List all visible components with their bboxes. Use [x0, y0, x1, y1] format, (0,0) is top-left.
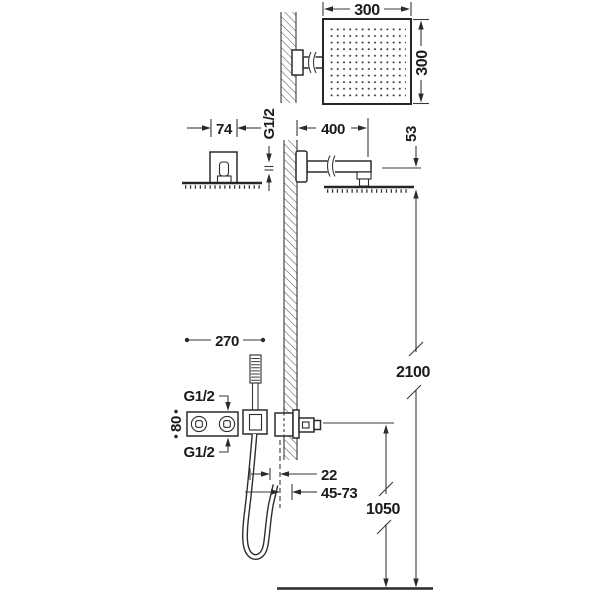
- wall-outlet-side-view: 1050 22 45-73: [245, 407, 400, 588]
- dim-mixer-offset-label: 270: [215, 333, 239, 350]
- rain-shower-head-plan-icon: [323, 19, 411, 104]
- technical-drawing-canvas: 300 300 74: [0, 0, 600, 600]
- dim-head-width-label: 300: [354, 2, 380, 19]
- dim-mixer-bottom-thread: G1/2: [184, 438, 231, 462]
- shower-installation-dimension-drawing: 300 300 74: [0, 0, 600, 600]
- dim-mixer-top-thread: G1/2: [184, 388, 231, 411]
- arm-escutcheon-front-icon: [210, 152, 237, 183]
- dim-escutcheon-width-label: 74: [216, 121, 233, 138]
- dim-arm-thread: G1/2: [261, 108, 278, 191]
- dim-outlet-range: 45-73: [245, 484, 357, 502]
- dim-arm-length-label: 400: [321, 121, 345, 138]
- dim-mixer-height: 80: [168, 410, 185, 439]
- dim-escutcheon-width: 74: [187, 119, 261, 138]
- dim-head-width: 300: [323, 2, 411, 19]
- shower-arm-side-view: 400 53 2100: [296, 118, 430, 588]
- mixer-top-thread-label: G1/2: [184, 388, 215, 405]
- plan-view: 300 300: [281, 2, 431, 104]
- dim-mixer-height-label: 80: [168, 416, 185, 432]
- arm-thread-label: G1/2: [261, 108, 278, 139]
- dim-head-depth: 300: [413, 20, 431, 104]
- shower-arm-plan-icon: [292, 50, 323, 75]
- dim-head-height: 2100: [396, 190, 430, 588]
- dim-head-height-label: 2100: [396, 364, 430, 381]
- dim-head-depth-label: 300: [414, 50, 431, 76]
- shower-hose-icon: [245, 434, 276, 557]
- dim-head-drop: 53: [382, 126, 421, 168]
- dim-holder-offset-label: 22: [321, 467, 337, 484]
- mixer-bottom-thread-label: G1/2: [184, 444, 215, 461]
- dim-outlet-height: 1050: [366, 425, 400, 588]
- rain-head-side-icon: [324, 187, 414, 191]
- dim-mixer-offset: 270: [185, 333, 265, 350]
- dim-arm-length: 400: [297, 118, 368, 157]
- dim-head-drop-label: 53: [403, 126, 420, 142]
- dim-outlet-height-label: 1050: [366, 501, 400, 518]
- thermostatic-mixer-icon: [187, 412, 238, 436]
- hand-shower-icon: [250, 355, 261, 410]
- mixer-front-view: 270 80 G1/2 G1/2: [168, 333, 276, 557]
- outlet-flange-icon: [293, 410, 299, 438]
- hand-shower-holder-icon: [243, 410, 267, 434]
- outlet-spout-icon: [299, 418, 321, 432]
- shower-arm-side-icon: [296, 151, 371, 186]
- dim-outlet-range-label: 45-73: [321, 485, 357, 502]
- head-edge-front-icon: [182, 183, 262, 187]
- arm-front-detail: 74 G1/2: [182, 108, 278, 191]
